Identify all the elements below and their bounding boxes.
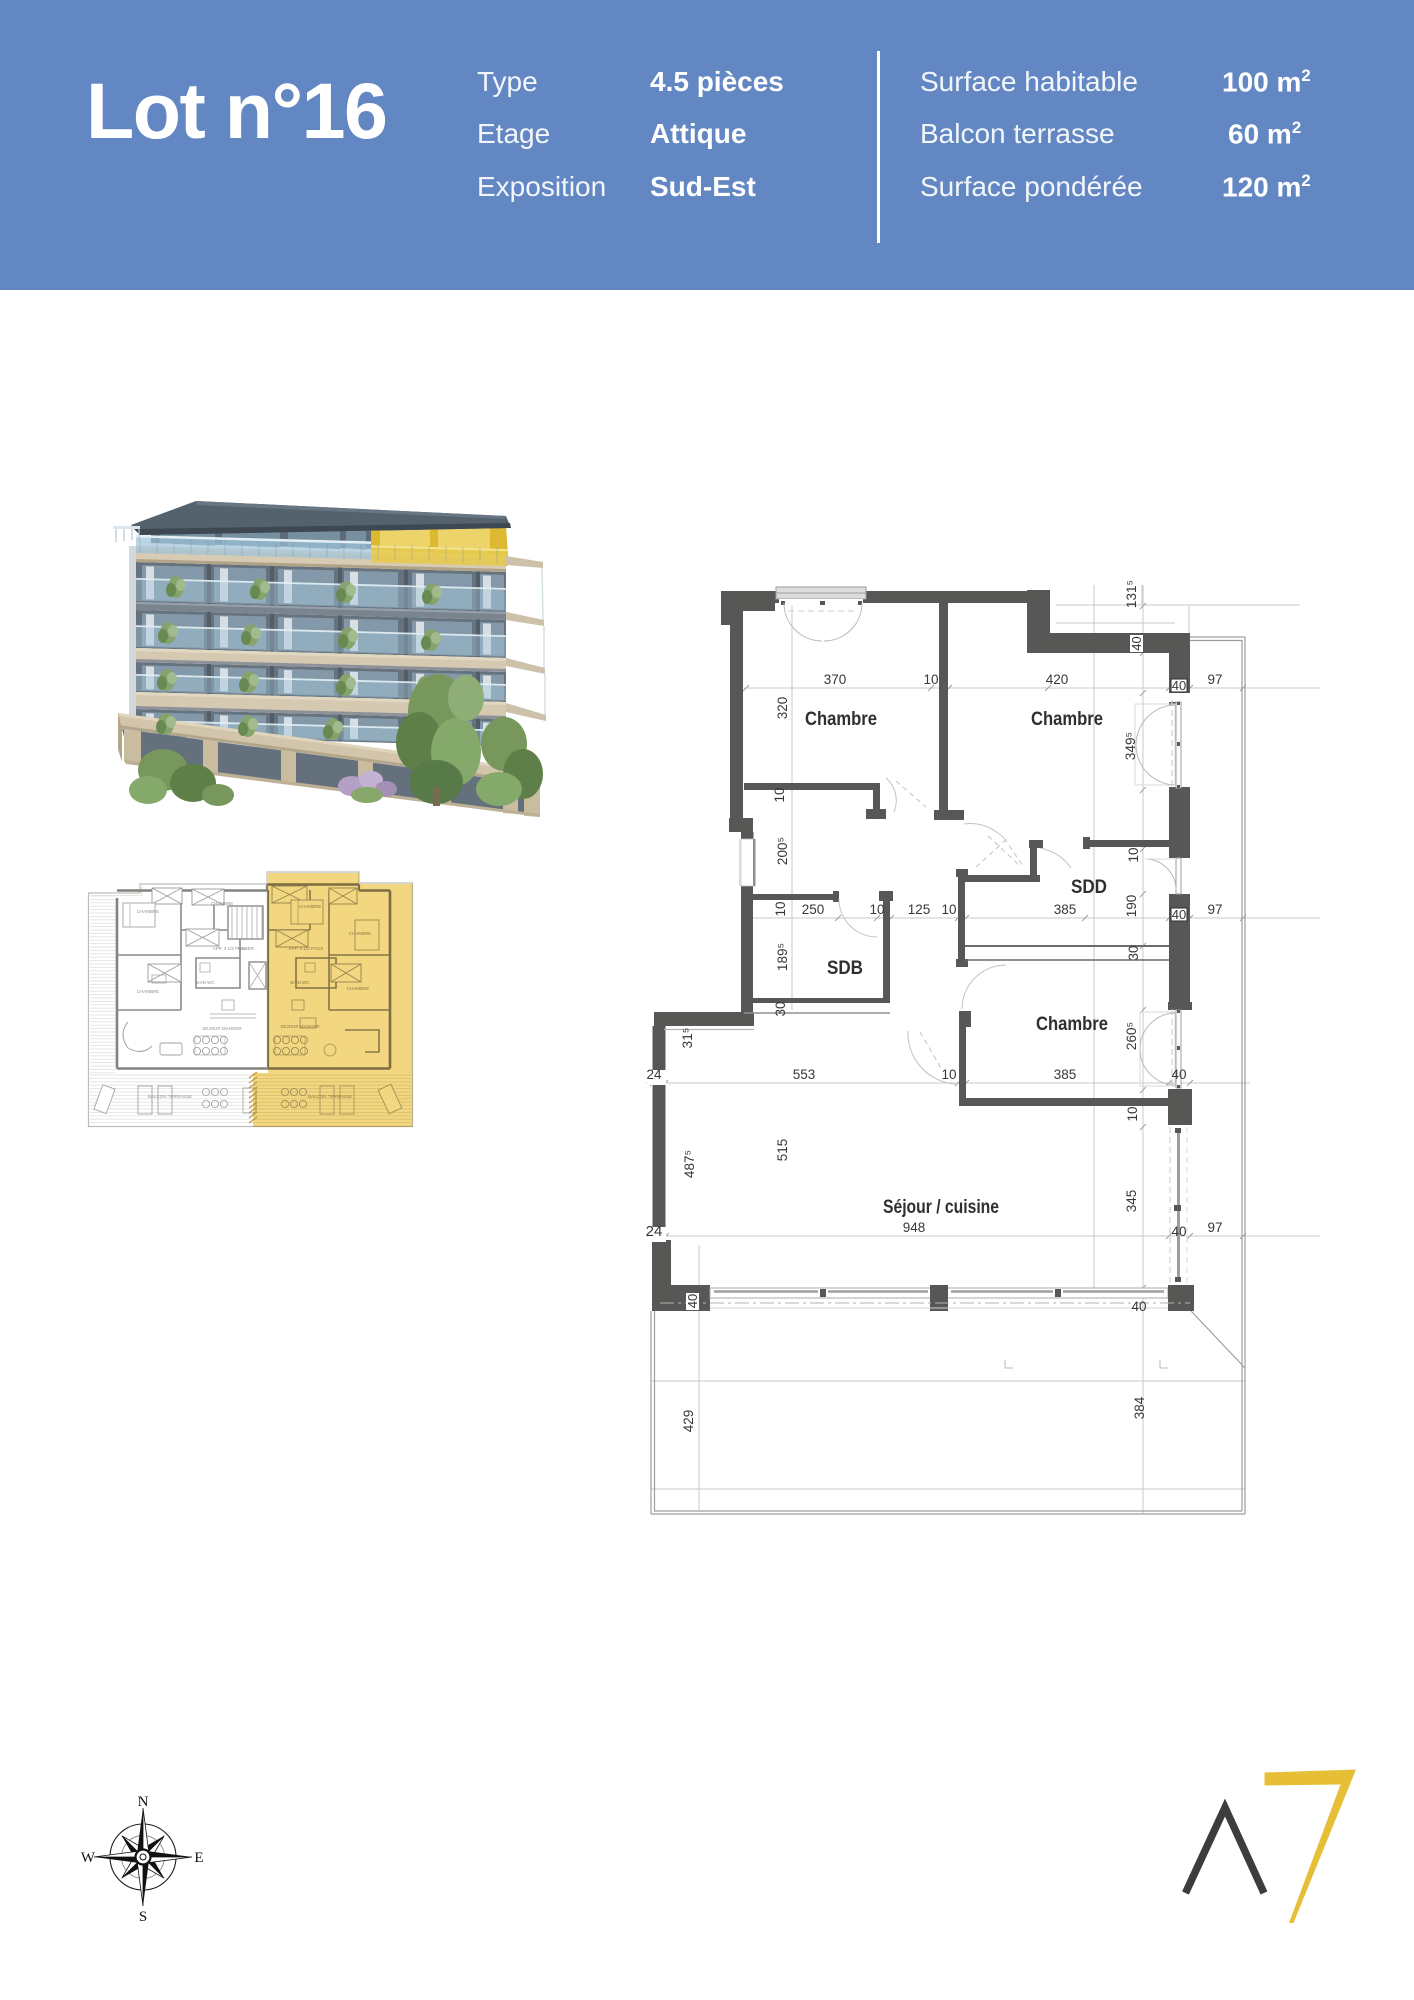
svg-text:Chambre: Chambre xyxy=(1031,709,1103,730)
svg-text:10: 10 xyxy=(1126,847,1141,862)
svg-text:30: 30 xyxy=(773,1001,788,1016)
svg-text:40: 40 xyxy=(1129,636,1144,650)
svg-text:10: 10 xyxy=(773,901,788,916)
svg-text:40: 40 xyxy=(1172,678,1186,693)
svg-text:30: 30 xyxy=(1126,945,1141,960)
svg-text:10: 10 xyxy=(869,902,884,917)
svg-text:PALIER: PALIER xyxy=(238,946,254,951)
svg-text:40: 40 xyxy=(1171,1224,1186,1239)
svg-text:97: 97 xyxy=(1207,902,1222,917)
svg-text:429: 429 xyxy=(681,1410,696,1433)
svg-text:200⁵: 200⁵ xyxy=(775,837,790,865)
svg-text:10: 10 xyxy=(923,672,938,687)
svg-text:125: 125 xyxy=(908,902,931,917)
svg-text:420: 420 xyxy=(1046,672,1069,687)
svg-text:10: 10 xyxy=(1125,1106,1140,1121)
svg-text:487⁵: 487⁵ xyxy=(682,1150,697,1178)
svg-text:SDD: SDD xyxy=(1071,877,1107,898)
svg-text:40: 40 xyxy=(1131,1299,1146,1314)
svg-text:320: 320 xyxy=(775,697,790,720)
svg-text:Chambre: Chambre xyxy=(805,709,877,730)
svg-text:345: 345 xyxy=(1124,1190,1139,1213)
svg-text:384: 384 xyxy=(1132,1396,1147,1419)
svg-text:97: 97 xyxy=(1207,1220,1222,1235)
svg-text:385: 385 xyxy=(1054,902,1077,917)
svg-text:BALCON TERRASSE: BALCON TERRASSE xyxy=(148,1094,192,1099)
svg-text:10: 10 xyxy=(772,787,787,802)
svg-text:250: 250 xyxy=(802,902,825,917)
svg-text:553: 553 xyxy=(793,1067,816,1082)
svg-text:CHAMBRE: CHAMBRE xyxy=(137,989,160,994)
svg-text:BAIN WC: BAIN WC xyxy=(195,980,215,985)
svg-text:24: 24 xyxy=(646,1067,662,1082)
svg-text:349⁵: 349⁵ xyxy=(1123,732,1138,760)
svg-text:S: S xyxy=(139,1909,147,1925)
svg-text:CHAMBRE: CHAMBRE xyxy=(211,901,234,906)
svg-text:Séjour / cuisine: Séjour / cuisine xyxy=(883,1197,999,1218)
svg-text:40: 40 xyxy=(685,1294,700,1308)
svg-text:31⁵: 31⁵ xyxy=(680,1028,695,1049)
svg-text:Chambre: Chambre xyxy=(1036,1014,1108,1035)
svg-text:190: 190 xyxy=(1124,895,1139,918)
svg-text:131⁵: 131⁵ xyxy=(1124,580,1139,608)
svg-text:515: 515 xyxy=(775,1139,790,1162)
svg-text:SEJOUR MANGER: SEJOUR MANGER xyxy=(202,1026,242,1031)
svg-text:10: 10 xyxy=(941,1067,956,1082)
svg-text:CHAMBRE: CHAMBRE xyxy=(137,909,160,914)
svg-text:40: 40 xyxy=(1172,907,1186,922)
svg-text:40: 40 xyxy=(1171,1067,1186,1082)
svg-text:SDB: SDB xyxy=(827,958,863,979)
svg-text:370: 370 xyxy=(824,672,847,687)
svg-text:260⁵: 260⁵ xyxy=(1124,1022,1139,1050)
svg-text:N: N xyxy=(138,1794,149,1810)
svg-text:97: 97 xyxy=(1207,672,1222,687)
svg-text:189⁵: 189⁵ xyxy=(775,943,790,971)
svg-text:E: E xyxy=(194,1850,203,1866)
svg-text:10: 10 xyxy=(941,902,956,917)
svg-text:948: 948 xyxy=(903,1220,926,1235)
svg-text:W: W xyxy=(81,1850,96,1866)
svg-text:24: 24 xyxy=(646,1223,663,1240)
svg-text:385: 385 xyxy=(1054,1067,1077,1082)
